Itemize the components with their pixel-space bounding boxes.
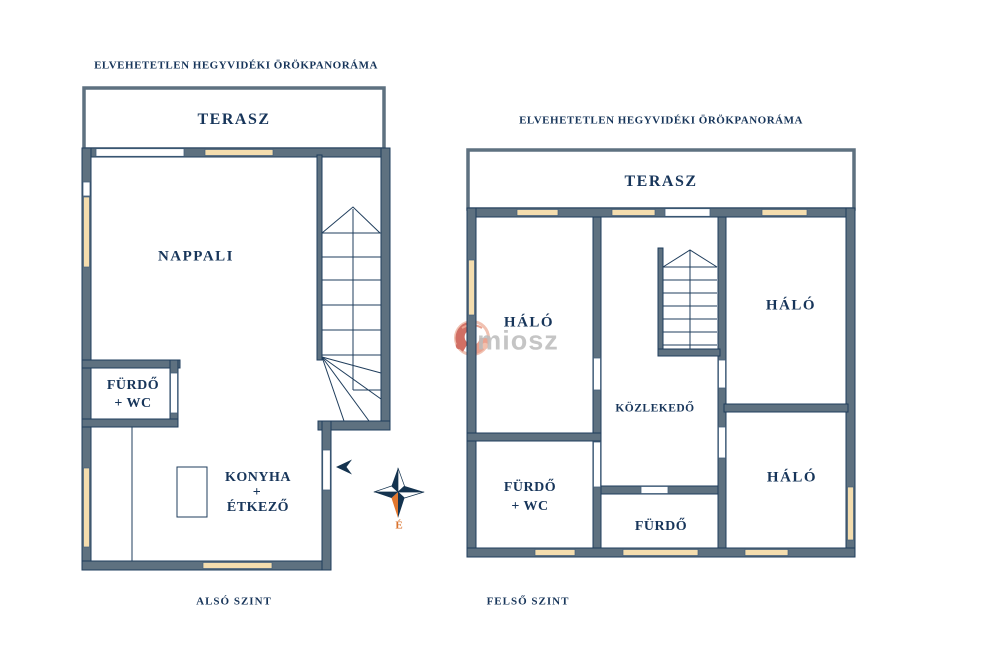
- lower-bathroom-label-line1: FÜRDŐ: [107, 379, 159, 393]
- upper-floor-caption: FELSŐ SZINT: [487, 597, 570, 608]
- hallway-label: KÖZLEKEDŐ: [615, 403, 694, 415]
- lower-staircase: [322, 207, 381, 421]
- upper-bathroom-label: FÜRDŐ: [635, 520, 687, 534]
- kitchen-label-line3: ÉTKEZŐ: [227, 501, 289, 515]
- lower-terrace-label: TERASZ: [197, 112, 270, 128]
- kitchen-label-line1: KONYHA: [225, 471, 291, 485]
- upper-bathroom-wc-label-line1: FÜRDŐ: [504, 481, 556, 495]
- upper-terrace-label: TERASZ: [624, 174, 697, 190]
- lower-floor-plan-graphics: [82, 88, 390, 570]
- compass-north-label: É: [395, 521, 402, 532]
- upper-floor-header: ELVEHETETLEN HEGYVIDÉKI ÖRÖKPANORÁMA: [519, 116, 803, 127]
- lower-floor-caption: ALSÓ SZINT: [196, 597, 272, 608]
- lower-bathroom-label-line2: + WC: [114, 397, 151, 411]
- bedroom-left-label: HÁLÓ: [504, 316, 554, 331]
- floor-plan-canvas: miosz ELVEHETETLEN HEGYVIDÉKI ÖRÖKPANORÁ…: [0, 0, 1000, 671]
- kitchen-island: [177, 467, 207, 517]
- watermark-text: miosz: [477, 328, 559, 355]
- upper-bathroom-wc-label-line2: + WC: [511, 500, 548, 514]
- bedroom-bottom-right-label: HÁLÓ: [767, 471, 817, 486]
- entrance-arrow-icon: [336, 460, 352, 475]
- lower-floor-header: ELVEHETETLEN HEGYVIDÉKI ÖRÖKPANORÁMA: [94, 61, 378, 72]
- bedroom-top-right-label: HÁLÓ: [766, 299, 816, 314]
- living-room-label: NAPPALI: [158, 250, 234, 265]
- lower-door-openings: [83, 149, 330, 490]
- kitchen-label-line2: +: [253, 486, 261, 500]
- compass-icon: [374, 468, 424, 518]
- upper-staircase: [663, 250, 717, 349]
